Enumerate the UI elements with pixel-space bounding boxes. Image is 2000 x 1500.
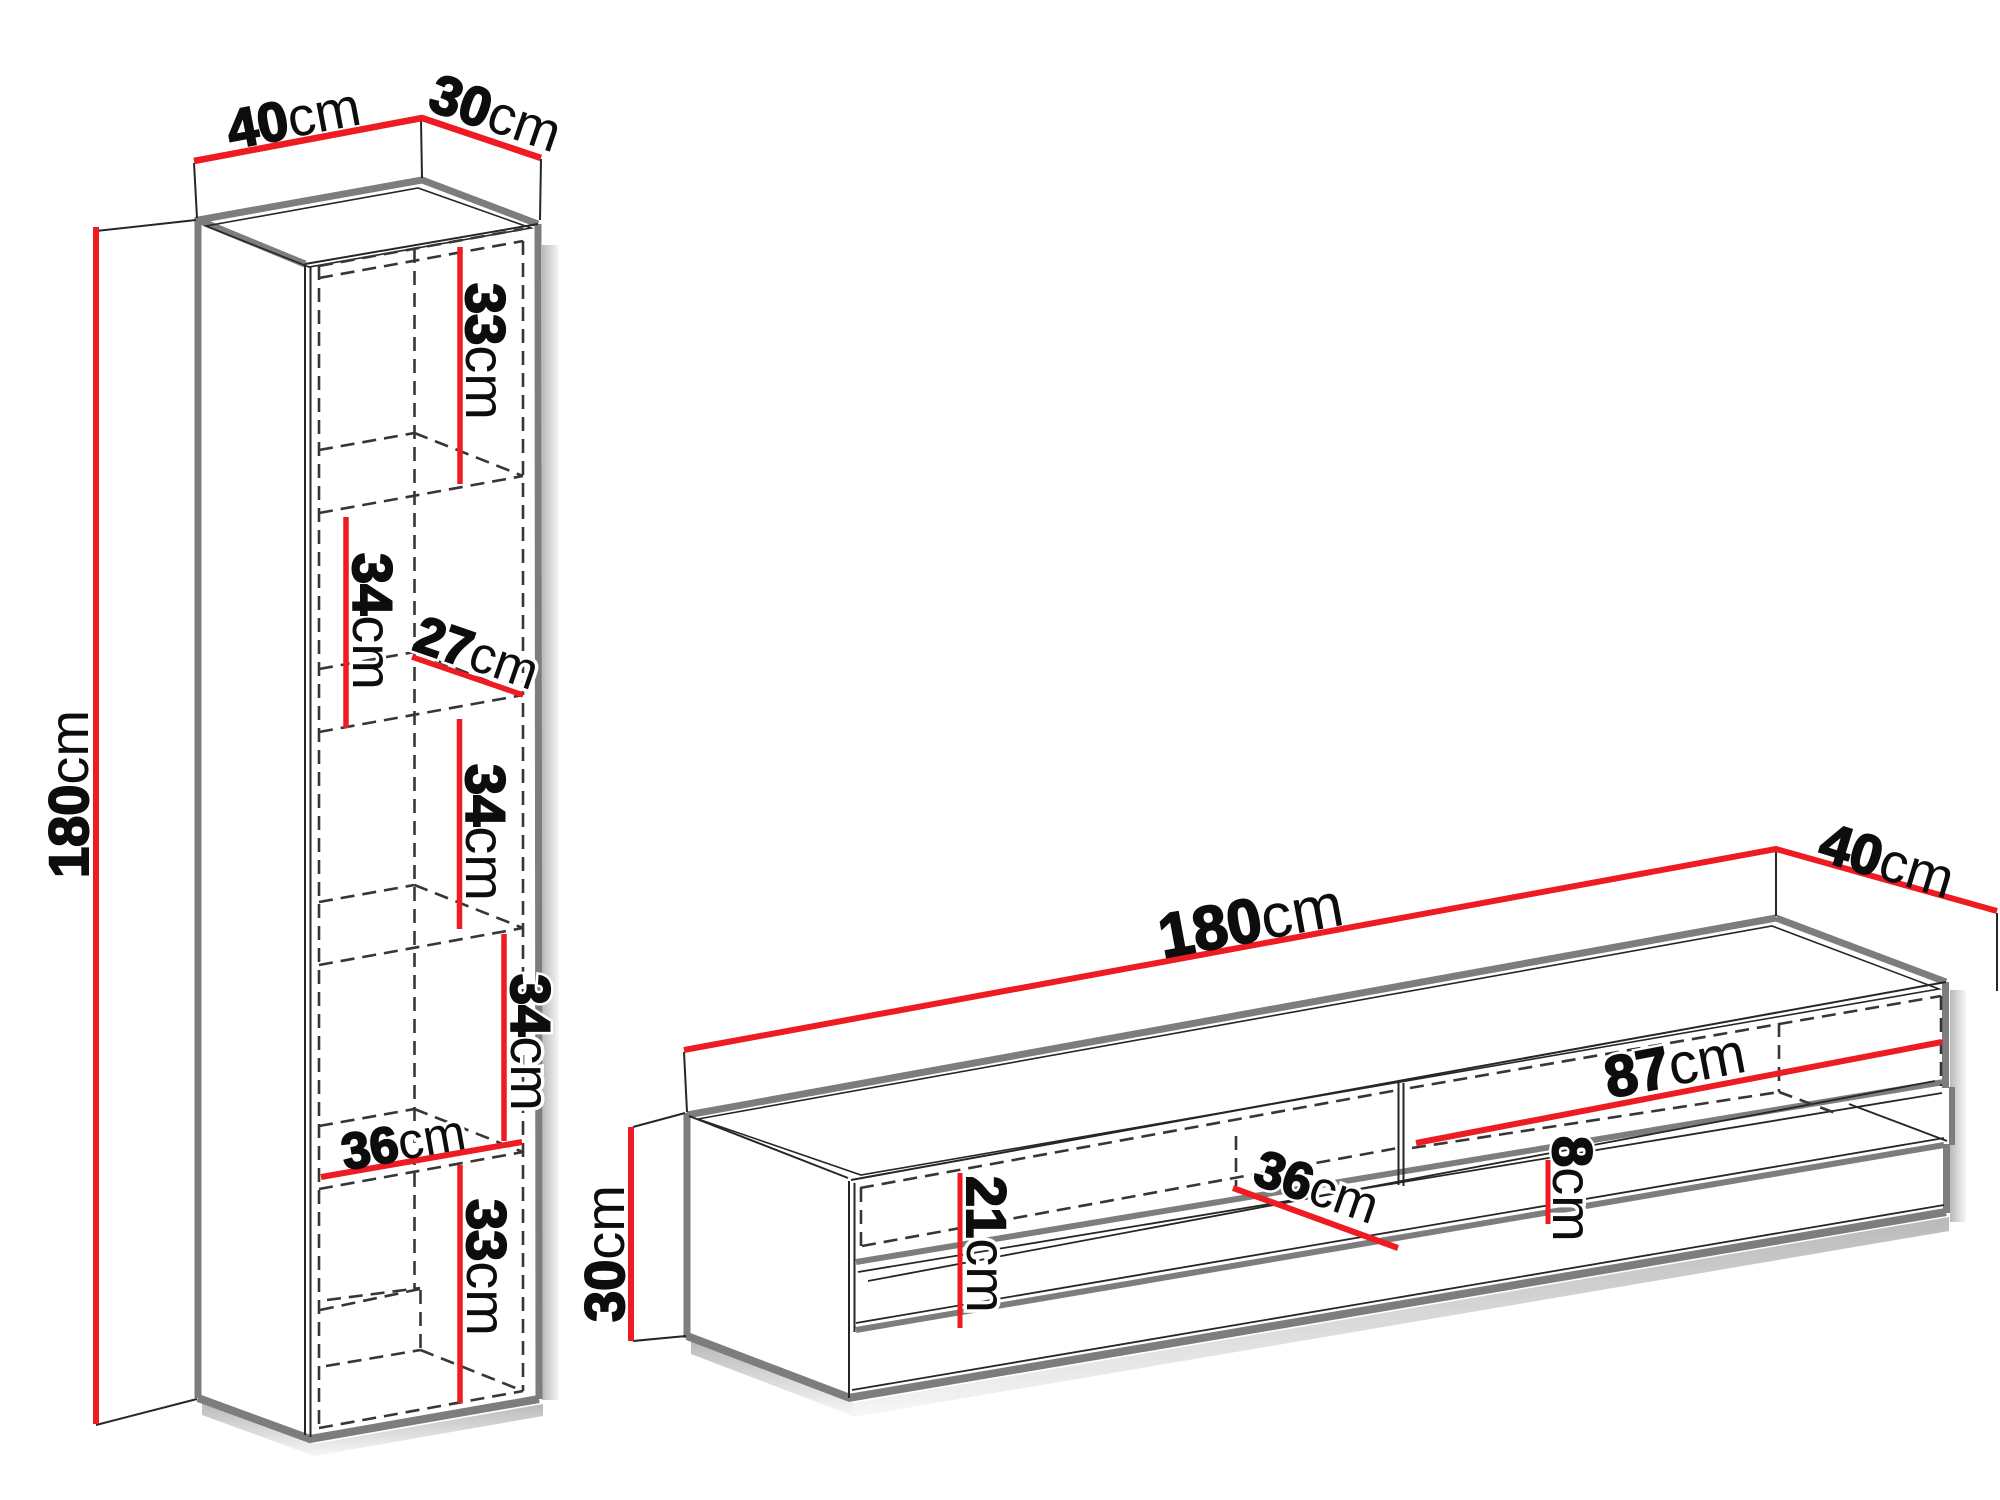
svg-text:180cm: 180cm (37, 710, 100, 878)
svg-text:34cm: 34cm (454, 764, 517, 901)
svg-text:33cm: 33cm (455, 1199, 518, 1336)
svg-text:33cm: 33cm (454, 283, 517, 420)
svg-text:8cm: 8cm (1541, 1136, 1604, 1242)
svg-text:34cm: 34cm (499, 974, 562, 1111)
svg-text:30cm: 30cm (573, 1185, 636, 1322)
svg-text:34cm: 34cm (341, 553, 404, 690)
svg-text:21cm: 21cm (955, 1176, 1018, 1313)
